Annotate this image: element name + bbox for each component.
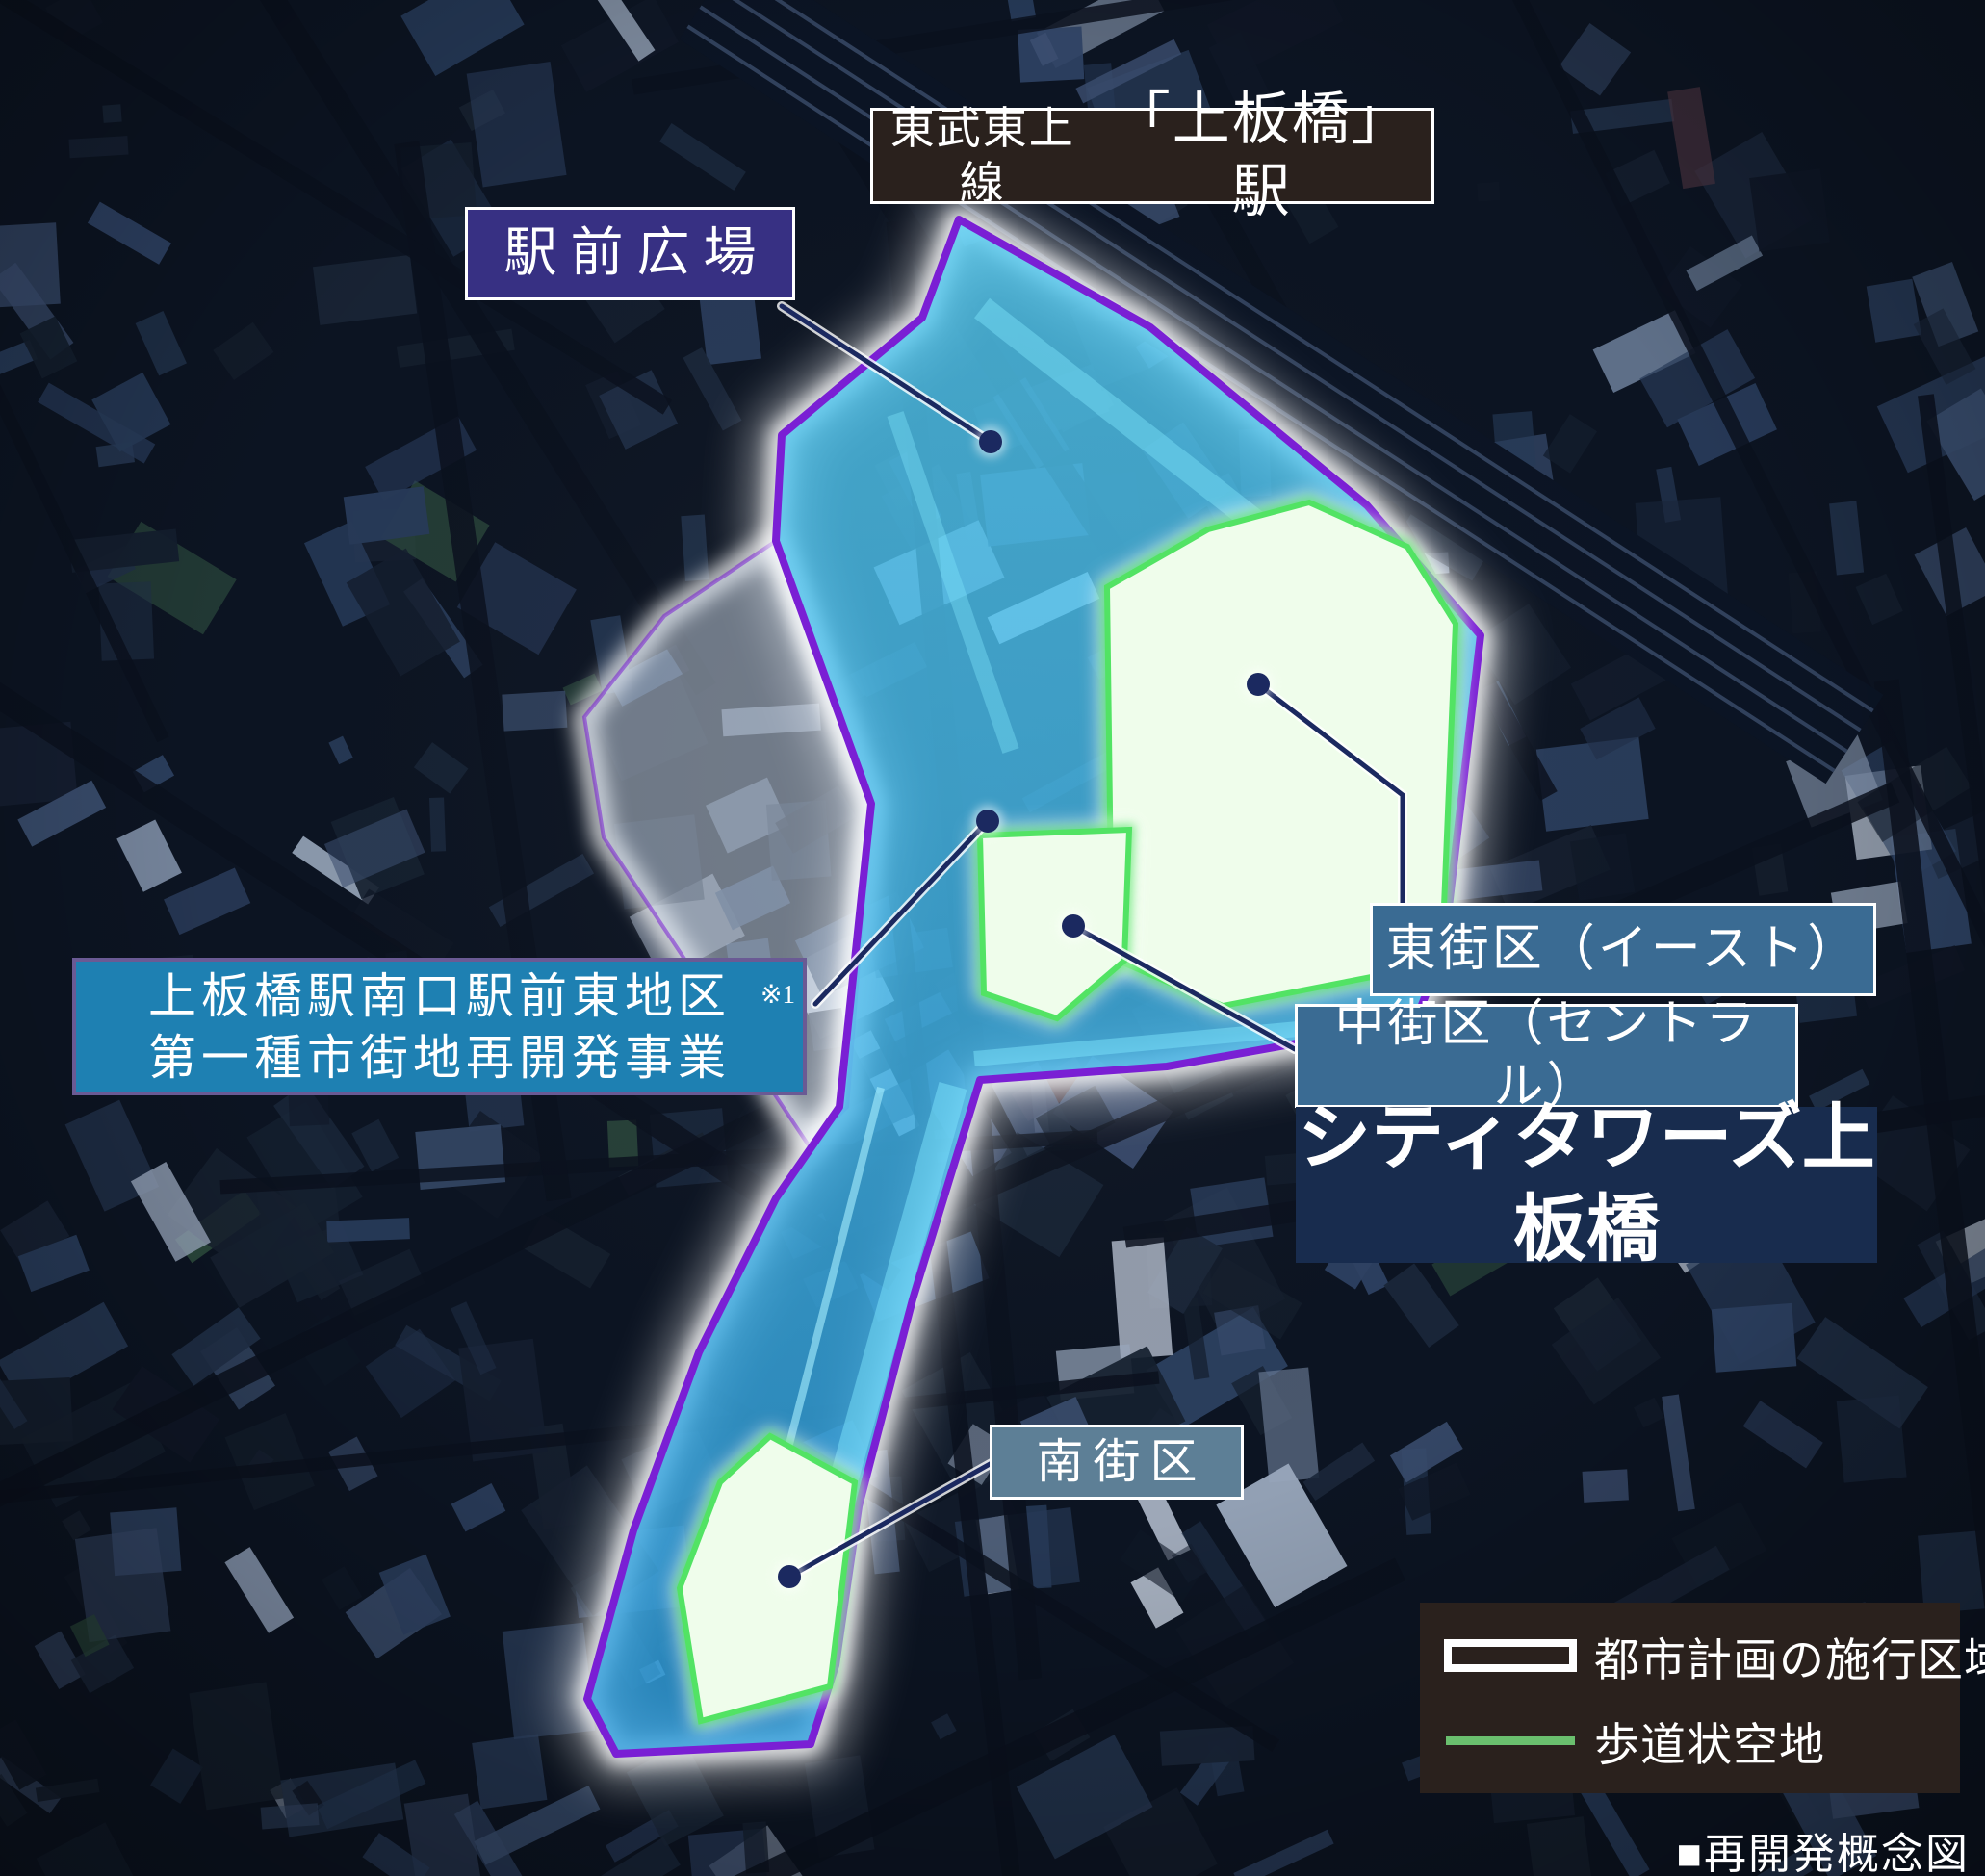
- east-leader-dot: [1247, 673, 1270, 696]
- station-label: 東武東上線「上板橋」駅: [870, 108, 1434, 204]
- legend-item-sidewalk-open-space: 歩道状空地: [1420, 1716, 1960, 1764]
- project-title: シティタワーズ上板橋: [1296, 1107, 1877, 1263]
- south-leader-dot: [778, 1565, 801, 1588]
- district-outline-symbol: [1444, 1639, 1577, 1672]
- plaza-label-text: 駅前広場: [503, 220, 769, 287]
- south-block-label: 南街区: [990, 1425, 1244, 1500]
- district-label-line2: 第一種市街地再開発事業: [148, 1027, 731, 1089]
- district-project-label: ※1 上板橋駅南口駅前東地区 第一種市街地再開発事業: [72, 958, 807, 1095]
- legend-item-district-outline: 都市計画の施行区域: [1420, 1632, 1960, 1680]
- legend-label-sidewalk-open-space: 歩道状空地: [1594, 1708, 1825, 1774]
- station-name: 「上板橋」駅: [1092, 84, 1431, 228]
- district-footnote-mark: ※1: [760, 964, 795, 1025]
- south-block-label-text: 南街区: [1036, 1432, 1206, 1491]
- central-block-label: 中街区（セントラル）: [1295, 1004, 1798, 1108]
- east-block-label: 東街区（イースト）: [1370, 903, 1876, 996]
- central-leader-dot: [1062, 914, 1085, 938]
- plaza-label: 駅前広場: [465, 207, 795, 300]
- redevelopment-concept-map: 東武東上線「上板橋」駅 駅前広場 ※1 上板橋駅南口駅前東地区 第一種市街地再開…: [0, 0, 1985, 1876]
- legend: 都市計画の施行区域 歩道状空地: [1420, 1603, 1960, 1793]
- map-caption: ■再開発概念図: [1676, 1819, 1970, 1876]
- legend-label-district-outline: 都市計画の施行区域: [1594, 1623, 1985, 1689]
- plaza-leader-dot: [979, 430, 1002, 453]
- district-label-line1: 上板橋駅南口駅前東地区: [148, 965, 731, 1027]
- project-title-text: シティタワーズ上板橋: [1296, 1093, 1877, 1276]
- east-block-label-text: 東街区（イースト）: [1386, 918, 1860, 981]
- district-leader-dot: [976, 810, 999, 833]
- sidewalk-line-symbol: [1444, 1736, 1577, 1745]
- station-line-name: 東武東上線: [873, 101, 1092, 212]
